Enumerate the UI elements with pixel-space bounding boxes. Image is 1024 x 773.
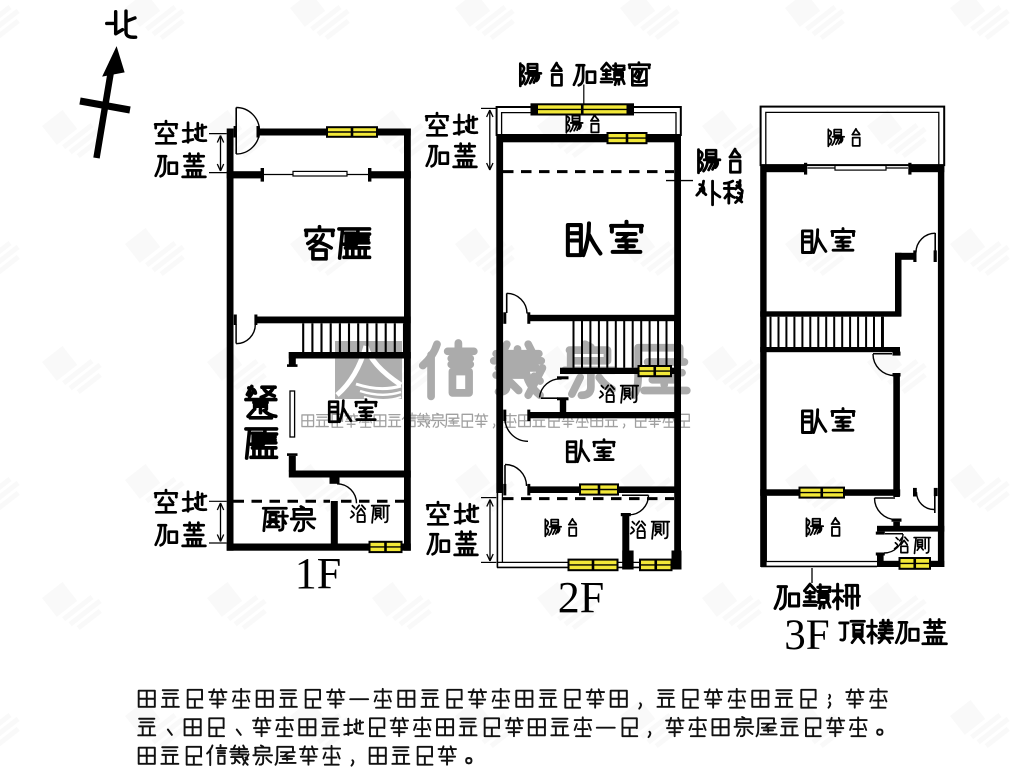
svg-text:1F: 1F — [295, 549, 341, 598]
svg-text:2F: 2F — [558, 573, 604, 622]
svg-text:3F: 3F — [784, 612, 829, 659]
